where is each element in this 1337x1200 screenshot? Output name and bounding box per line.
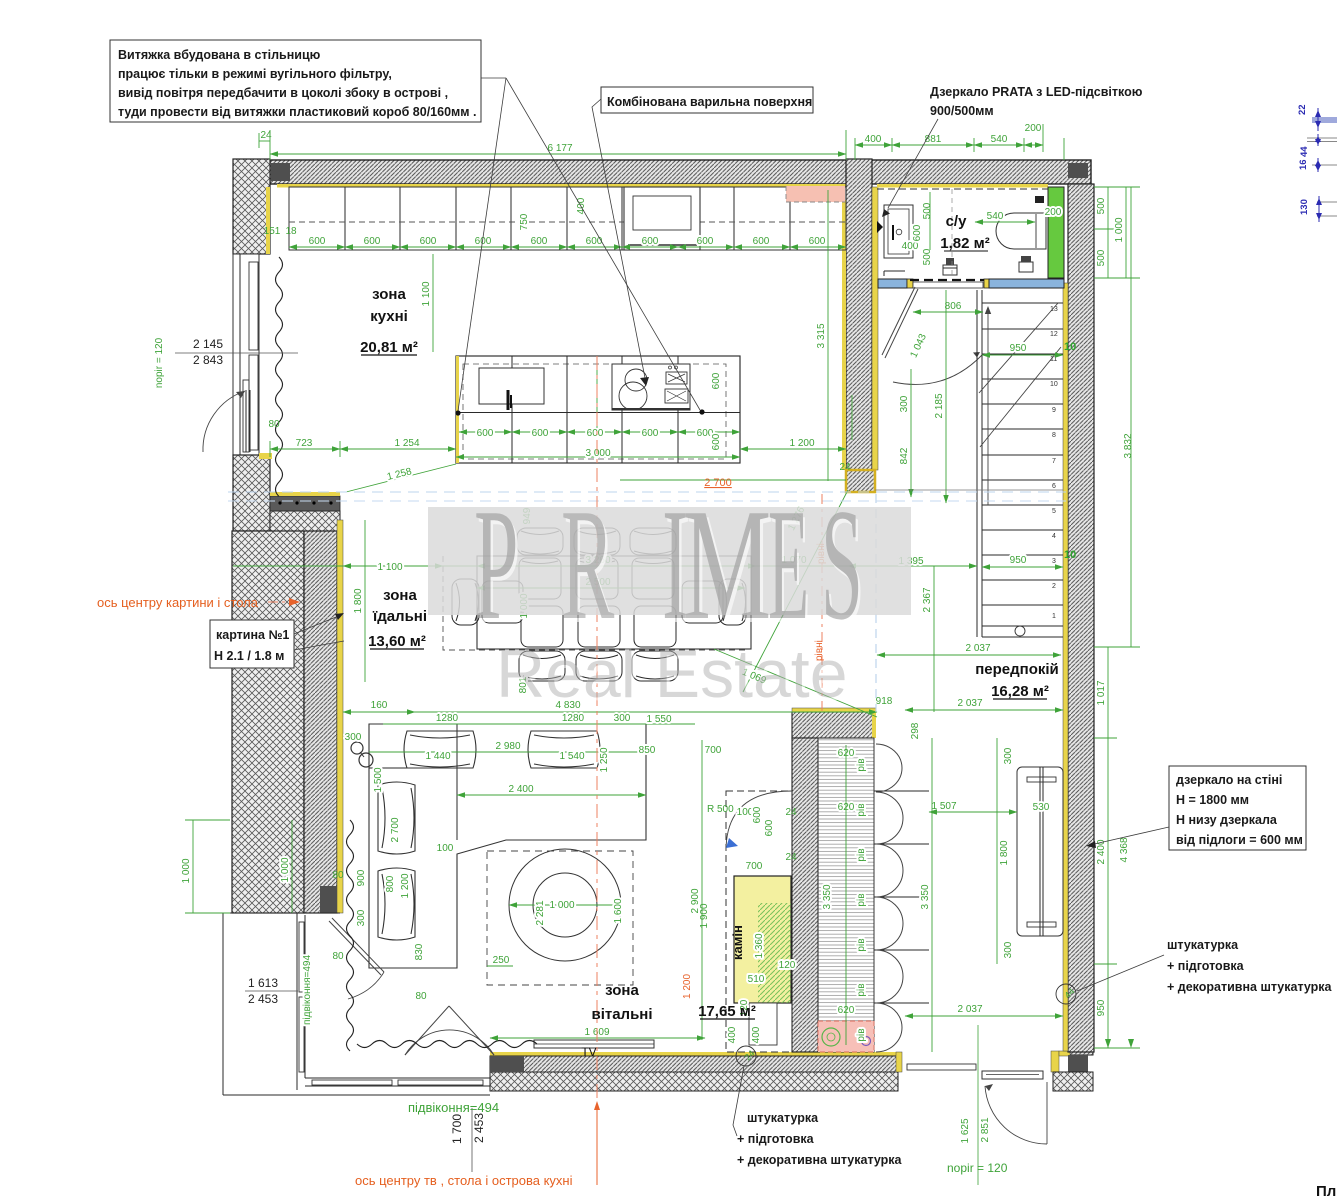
svg-text:16: 16 — [1298, 159, 1309, 170]
svg-text:рів: рів — [856, 758, 867, 771]
svg-text:18: 18 — [285, 226, 297, 237]
svg-text:830: 830 — [414, 943, 425, 960]
svg-text:1 507: 1 507 — [931, 801, 956, 812]
svg-text:600: 600 — [364, 236, 381, 247]
svg-text:2 700: 2 700 — [390, 817, 401, 842]
svg-text:24: 24 — [260, 130, 272, 141]
svg-text:850: 850 — [639, 745, 656, 756]
svg-text:130: 130 — [1299, 199, 1310, 215]
svg-text:600: 600 — [587, 428, 604, 439]
svg-text:20,81 м²: 20,81 м² — [360, 339, 418, 356]
svg-text:2 037: 2 037 — [957, 698, 982, 709]
svg-text:80: 80 — [332, 870, 344, 881]
svg-text:400: 400 — [751, 1026, 762, 1043]
svg-text:530: 530 — [1033, 802, 1050, 813]
svg-text:9: 9 — [1052, 407, 1056, 414]
svg-text:1 100: 1 100 — [421, 281, 432, 306]
svg-text:160: 160 — [371, 700, 388, 711]
svg-text:600: 600 — [477, 428, 494, 439]
svg-text:700: 700 — [746, 861, 763, 872]
svg-text:1 500: 1 500 — [373, 767, 384, 792]
svg-text:E: E — [768, 476, 809, 653]
svg-text:штукатурка: штукатурка — [747, 1111, 819, 1125]
svg-text:1 360: 1 360 — [754, 933, 765, 958]
svg-text:Н 2.1 / 1.8 м: Н 2.1 / 1.8 м — [214, 649, 284, 663]
svg-text:500: 500 — [1096, 197, 1107, 214]
svg-text:вітальні: вітальні — [591, 1006, 652, 1023]
svg-text:24: 24 — [785, 807, 797, 818]
svg-text:Н = 1800 мм: Н = 1800 мм — [1176, 793, 1249, 807]
svg-text:400: 400 — [902, 241, 919, 252]
svg-text:1 625: 1 625 — [960, 1118, 971, 1143]
svg-text:300: 300 — [899, 395, 910, 412]
svg-text:5: 5 — [1052, 508, 1056, 515]
svg-text:1 600: 1 600 — [613, 898, 624, 923]
svg-text:1 000: 1 000 — [1114, 217, 1125, 242]
svg-text:250: 250 — [493, 955, 510, 966]
svg-text:510: 510 — [748, 974, 765, 985]
svg-text:806: 806 — [945, 301, 962, 312]
svg-text:600: 600 — [531, 236, 548, 247]
svg-text:4 368: 4 368 — [1119, 837, 1130, 862]
svg-text:600: 600 — [711, 433, 722, 450]
svg-text:1 540: 1 540 — [559, 751, 584, 762]
svg-text:900/500мм: 900/500мм — [930, 104, 994, 118]
svg-text:2 185: 2 185 — [934, 393, 945, 418]
svg-text:nopir = 120: nopir = 120 — [154, 337, 165, 388]
svg-text:nopir = 120: nopir = 120 — [947, 1161, 1008, 1175]
svg-text:камін: камін — [730, 925, 745, 960]
svg-text:R 500: R 500 — [707, 804, 734, 815]
svg-text:дзеркало на стіні: дзеркало на стіні — [1176, 773, 1282, 787]
svg-text:1 800: 1 800 — [353, 588, 364, 613]
svg-text:підвіконня=494: підвіконня=494 — [302, 955, 313, 1025]
svg-text:+ підготовка: + підготовка — [737, 1132, 815, 1146]
svg-text:44: 44 — [1299, 146, 1310, 157]
svg-text:4: 4 — [1052, 533, 1056, 540]
svg-text:400: 400 — [865, 134, 882, 145]
svg-text:штукатурка: штукатурка — [1167, 938, 1239, 952]
svg-text:80: 80 — [268, 419, 280, 430]
svg-text:10: 10 — [1050, 381, 1058, 388]
svg-text:500: 500 — [922, 248, 933, 265]
svg-text:рів: рів — [856, 803, 867, 816]
svg-text:600: 600 — [642, 428, 659, 439]
svg-text:600: 600 — [420, 236, 437, 247]
svg-text:918: 918 — [876, 696, 893, 707]
svg-text:2 037: 2 037 — [965, 643, 990, 654]
svg-text:Н низу дзеркала: Н низу дзеркала — [1176, 813, 1278, 827]
svg-text:7: 7 — [1052, 458, 1056, 465]
svg-text:2 453: 2 453 — [248, 992, 278, 1006]
svg-text:зона: зона — [605, 982, 639, 999]
svg-text:2 980: 2 980 — [495, 741, 520, 752]
svg-text:600: 600 — [752, 806, 763, 823]
svg-text:Витяжка вбудована в стільницю: Витяжка вбудована в стільницю — [118, 48, 321, 62]
svg-text:298: 298 — [910, 722, 921, 739]
svg-text:Пл: Пл — [1316, 1183, 1336, 1200]
svg-text:зона: зона — [372, 286, 406, 303]
svg-text:10: 10 — [1064, 341, 1076, 353]
svg-text:Комбінована варильна поверхня: Комбінована варильна поверхня — [607, 95, 812, 109]
svg-text:3 000: 3 000 — [585, 448, 610, 459]
svg-text:100: 100 — [437, 843, 454, 854]
svg-text:Дзеркало PRATA з LED-підсвітко: Дзеркало PRATA з LED-підсвіткою — [930, 85, 1143, 99]
svg-text:1 700: 1 700 — [450, 1114, 464, 1144]
svg-text:540: 540 — [991, 134, 1008, 145]
svg-text:700: 700 — [705, 745, 722, 756]
svg-text:1 550: 1 550 — [646, 714, 671, 725]
svg-text:881: 881 — [925, 134, 942, 145]
svg-text:1280: 1280 — [436, 713, 459, 724]
svg-text:600: 600 — [532, 428, 549, 439]
svg-text:300: 300 — [345, 732, 362, 743]
svg-text:TV: TV — [581, 1045, 596, 1059]
svg-text:22: 22 — [1297, 104, 1308, 115]
svg-text:с/у: с/у — [946, 213, 968, 230]
svg-text:6 177: 6 177 — [547, 143, 572, 154]
svg-text:842: 842 — [899, 447, 910, 464]
svg-text:300: 300 — [1003, 747, 1014, 764]
svg-text:рів: рів — [856, 893, 867, 906]
svg-text:400: 400 — [727, 1026, 738, 1043]
svg-text:2: 2 — [1052, 583, 1056, 590]
svg-text:600: 600 — [912, 224, 923, 241]
svg-text:1 900: 1 900 — [699, 903, 710, 928]
svg-text:600: 600 — [711, 372, 722, 389]
svg-text:1 613: 1 613 — [248, 976, 278, 990]
svg-text:1 440: 1 440 — [425, 751, 450, 762]
svg-text:900: 900 — [356, 869, 367, 886]
svg-text:600: 600 — [697, 236, 714, 247]
svg-text:24: 24 — [785, 852, 797, 863]
svg-text:3 832: 3 832 — [1123, 433, 1134, 458]
svg-text:1 254: 1 254 — [394, 438, 419, 449]
svg-text:151: 151 — [264, 226, 281, 237]
svg-text:1 017: 1 017 — [1096, 680, 1107, 705]
svg-text:80: 80 — [332, 951, 344, 962]
svg-text:Real Estate: Real Estate — [496, 636, 848, 712]
svg-text:8: 8 — [1052, 432, 1056, 439]
svg-text:P: P — [474, 476, 518, 653]
svg-text:600: 600 — [809, 236, 826, 247]
svg-text:950: 950 — [1096, 999, 1107, 1016]
svg-text:3: 3 — [1052, 558, 1056, 565]
svg-text:12: 12 — [1050, 331, 1058, 338]
svg-text:рів: рів — [856, 848, 867, 861]
svg-text:13: 13 — [1050, 306, 1058, 313]
svg-text:1,82 м²: 1,82 м² — [940, 235, 989, 252]
svg-text:підвіконня=494: підвіконня=494 — [408, 1100, 499, 1115]
svg-text:120: 120 — [779, 960, 796, 971]
svg-text:2 843: 2 843 — [193, 353, 223, 367]
svg-text:від підлоги = 600 мм: від підлоги = 600 мм — [1176, 833, 1303, 847]
svg-text:24: 24 — [839, 462, 851, 473]
svg-text:16,28 м²: 16,28 м² — [991, 683, 1049, 700]
svg-text:передпокій: передпокій — [975, 661, 1059, 678]
svg-text:600: 600 — [642, 236, 659, 247]
svg-text:750: 750 — [519, 213, 530, 230]
svg-text:S: S — [821, 477, 863, 654]
svg-text:M: M — [683, 475, 771, 653]
svg-text:їдальні: їдальні — [372, 608, 427, 625]
svg-text:950: 950 — [1010, 343, 1027, 354]
svg-text:200: 200 — [1025, 123, 1042, 134]
svg-text:рів: рів — [856, 1028, 867, 1041]
svg-text:950: 950 — [1010, 555, 1027, 566]
svg-text:600: 600 — [309, 236, 326, 247]
svg-text:вивід повітря передбачити в цо: вивід повітря передбачити в цоколі збоку… — [118, 86, 448, 100]
svg-text:1 200: 1 200 — [400, 873, 411, 898]
svg-text:17,65 м²: 17,65 м² — [698, 1003, 756, 1020]
svg-text:13,60 м²: 13,60 м² — [368, 633, 426, 650]
svg-text:200: 200 — [1045, 207, 1062, 218]
svg-text:ось центру картини і стола: ось центру картини і стола — [97, 595, 259, 610]
svg-text:+ декоративна штукатурка: + декоративна штукатурка — [1167, 980, 1333, 994]
svg-text:2 367: 2 367 — [922, 587, 933, 612]
svg-text:500: 500 — [922, 202, 933, 219]
svg-text:+ декоративна штукатурка: + декоративна штукатурка — [737, 1153, 903, 1167]
svg-text:10: 10 — [1064, 549, 1076, 561]
svg-text:723: 723 — [296, 438, 313, 449]
svg-text:2 145: 2 145 — [193, 337, 223, 351]
svg-text:+ підготовка: + підготовка — [1167, 959, 1245, 973]
svg-text:1 100: 1 100 — [377, 562, 402, 573]
svg-text:рів: рів — [856, 983, 867, 996]
svg-text:2 453: 2 453 — [472, 1113, 486, 1143]
svg-text:600: 600 — [764, 819, 775, 836]
svg-text:кухні: кухні — [370, 308, 408, 325]
svg-text:3 350: 3 350 — [822, 884, 833, 909]
svg-text:1 800: 1 800 — [999, 840, 1010, 865]
svg-text:11: 11 — [1050, 356, 1057, 363]
svg-text:працює тільки в режимі вугільн: працює тільки в режимі вугільного фільтр… — [118, 67, 392, 81]
svg-text:800: 800 — [385, 875, 396, 892]
svg-text:ось центру тв , стола і остров: ось центру тв , стола і острова кухні — [355, 1173, 573, 1188]
svg-text:2 281: 2 281 — [535, 900, 546, 925]
svg-text:1 000: 1 000 — [549, 900, 574, 911]
svg-text:R: R — [561, 476, 615, 653]
svg-text:400: 400 — [576, 197, 587, 214]
svg-text:3 350: 3 350 — [920, 884, 931, 909]
svg-text:500: 500 — [1096, 249, 1107, 266]
svg-text:80: 80 — [415, 991, 427, 1002]
svg-text:600: 600 — [753, 236, 770, 247]
svg-text:1 200: 1 200 — [789, 438, 814, 449]
svg-text:туди провести від витяжки плас: туди провести від витяжки пластиковий ко… — [118, 105, 476, 119]
svg-text:2 400: 2 400 — [508, 784, 533, 795]
svg-text:300: 300 — [1003, 941, 1014, 958]
svg-text:1: 1 — [1052, 613, 1056, 620]
svg-text:1 200: 1 200 — [682, 974, 693, 999]
svg-text:6: 6 — [1052, 483, 1056, 490]
svg-text:1 000: 1 000 — [280, 857, 291, 882]
svg-text:600: 600 — [586, 236, 603, 247]
svg-text:рів: рів — [856, 938, 867, 951]
svg-text:1 000: 1 000 — [181, 858, 192, 883]
svg-text:300: 300 — [356, 909, 367, 926]
svg-text:2 037: 2 037 — [957, 1004, 982, 1015]
svg-text:540: 540 — [987, 211, 1004, 222]
svg-text:зона: зона — [383, 587, 417, 604]
svg-text:картина №1: картина №1 — [216, 628, 289, 642]
svg-text:2 851: 2 851 — [980, 1117, 991, 1142]
svg-text:3 315: 3 315 — [816, 323, 827, 348]
svg-text:1 250: 1 250 — [599, 747, 610, 772]
